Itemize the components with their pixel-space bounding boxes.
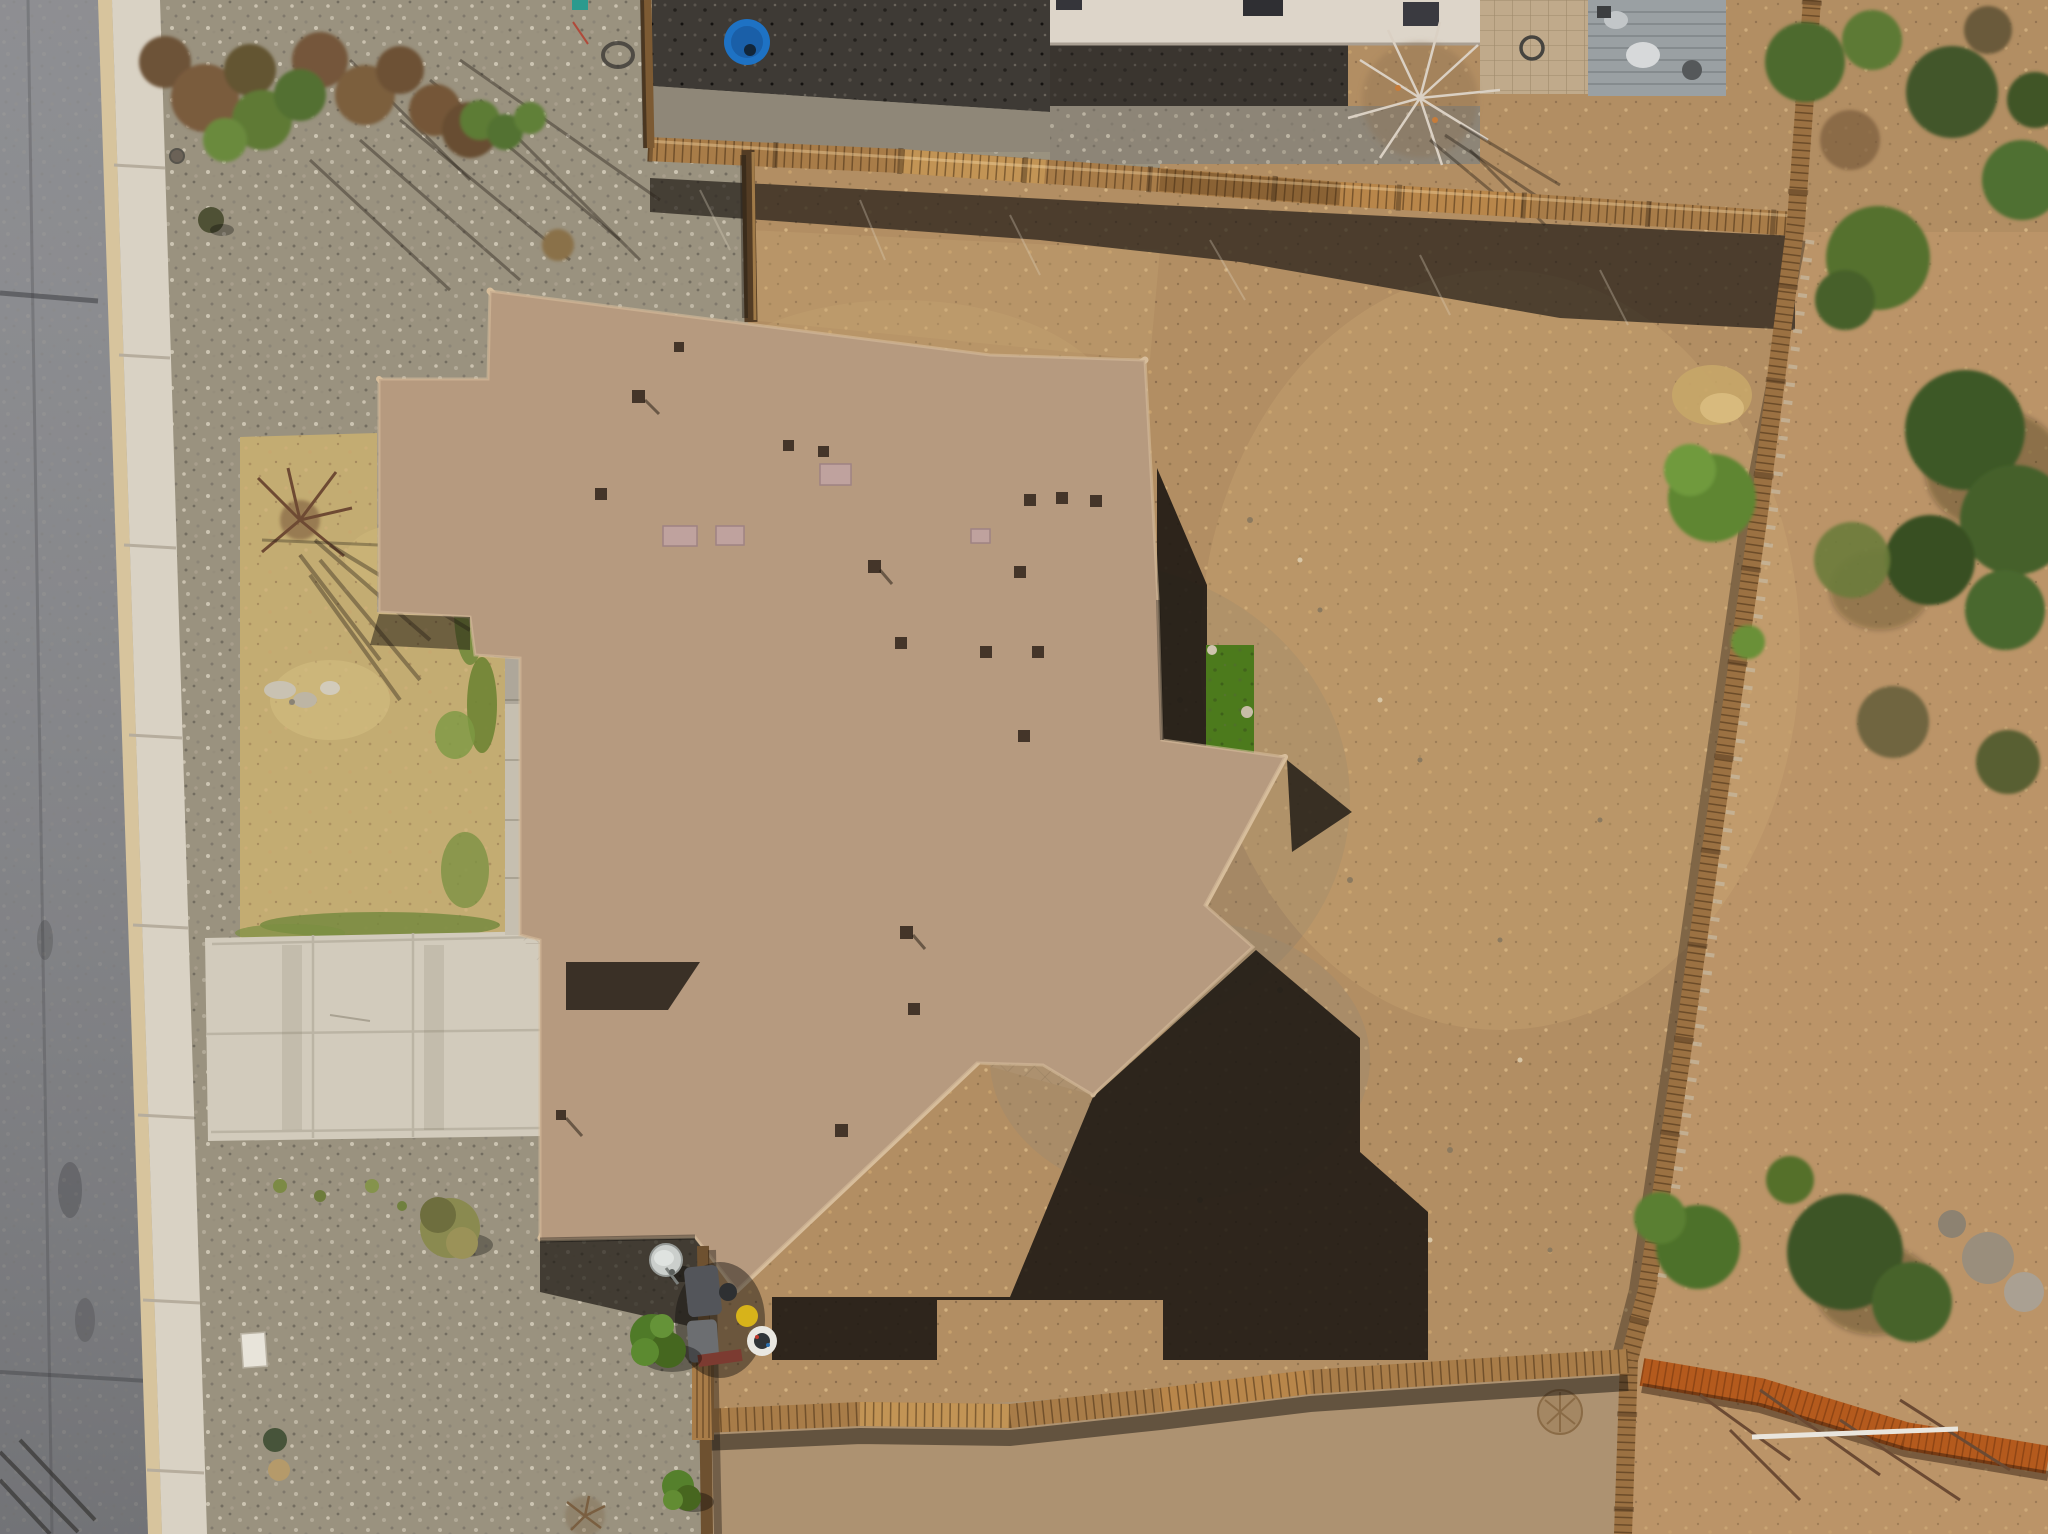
blue-kiddie-pool <box>724 19 770 65</box>
neighbor-deck-furniture <box>1588 0 1726 96</box>
neighbor-house <box>1050 0 1480 44</box>
patio-chair <box>1626 42 1660 68</box>
aerial-photo <box>0 0 2048 1534</box>
teal-planter <box>572 0 588 10</box>
backyard-divider-fence <box>743 150 755 322</box>
utility-pad <box>241 1332 267 1368</box>
concrete-driveway <box>205 931 543 1141</box>
neighbor-paver-patio <box>1480 0 1588 94</box>
yellow-toy <box>736 1305 758 1327</box>
window <box>1403 2 1439 26</box>
window <box>1243 0 1283 16</box>
artificial-turf-strip <box>1206 645 1254 759</box>
neighbor-divider-fence <box>642 0 649 148</box>
wing-eave-shadow <box>370 614 470 650</box>
utility-lid <box>170 149 184 163</box>
tumbleweed <box>1538 1390 1582 1434</box>
